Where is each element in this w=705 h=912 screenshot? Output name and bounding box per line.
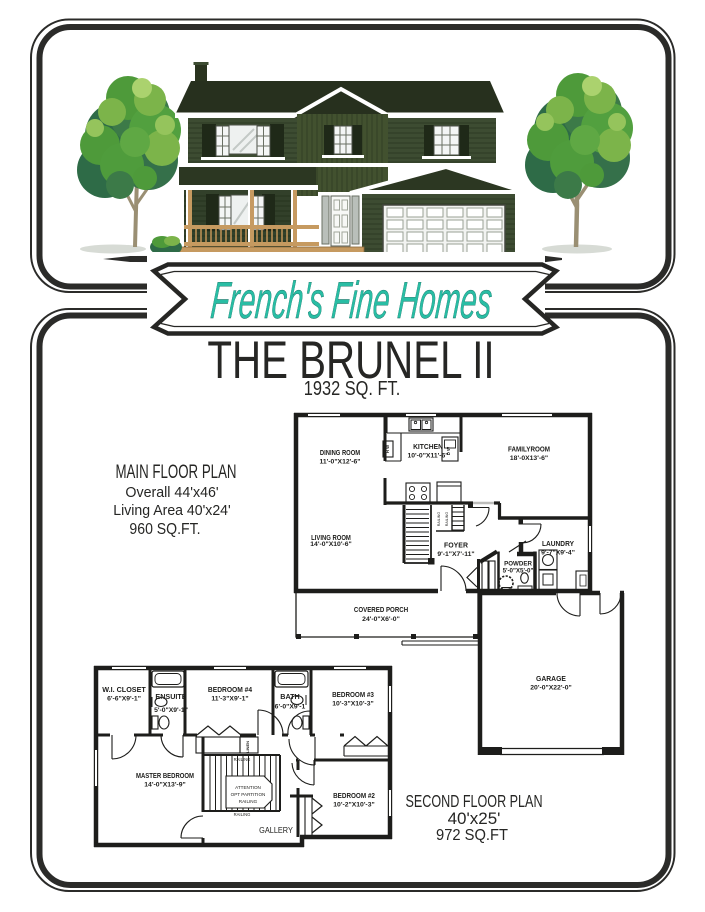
svg-text:BEDROOM #3: BEDROOM #3: [332, 692, 374, 699]
svg-text:French's Fine Homes: French's Fine Homes: [209, 271, 495, 329]
svg-text:DINING ROOM: DINING ROOM: [320, 449, 361, 457]
svg-text:20'-0"X22'-0": 20'-0"X22'-0": [530, 685, 571, 692]
svg-text:LAUNDRY: LAUNDRY: [542, 541, 574, 548]
svg-text:Overall 44'x46': Overall 44'x46': [125, 485, 218, 501]
svg-text:POWDER: POWDER: [504, 560, 532, 567]
svg-text:LINEN: LINEN: [245, 741, 250, 753]
svg-text:10'-2"X10'-3": 10'-2"X10'-3": [333, 802, 374, 809]
svg-text:RAILING: RAILING: [437, 512, 441, 527]
svg-text:RAILING: RAILING: [445, 512, 449, 527]
svg-text:5'-0"X5'-0": 5'-0"X5'-0": [503, 568, 534, 575]
svg-text:11'-0"X12'-6": 11'-0"X12'-6": [319, 459, 360, 466]
svg-text:18'-0X13'-6": 18'-0X13'-6": [510, 455, 548, 462]
svg-text:OPT PARTITION: OPT PARTITION: [231, 792, 266, 797]
svg-text:ENSUITE: ENSUITE: [155, 692, 186, 701]
svg-text:10'-3"X10'-3": 10'-3"X10'-3": [332, 701, 373, 708]
svg-text:14'-0"X10'-6": 14'-0"X10'-6": [310, 541, 351, 548]
svg-text:RAILING: RAILING: [234, 757, 251, 762]
svg-text:40'x25': 40'x25': [448, 809, 501, 828]
svg-text:GALLERY: GALLERY: [259, 826, 293, 835]
svg-text:BEDROOM #2: BEDROOM #2: [333, 793, 375, 800]
svg-text:FAMILYROOM: FAMILYROOM: [508, 446, 550, 454]
svg-text:BEDROOM #4: BEDROOM #4: [208, 687, 252, 694]
svg-text:RAILING: RAILING: [234, 812, 251, 817]
svg-text:RAILING: RAILING: [239, 799, 258, 804]
svg-text:14'-0"X13'-9": 14'-0"X13'-9": [144, 782, 185, 789]
svg-text:FOYER: FOYER: [444, 541, 469, 549]
svg-text:10'-0"X11'-6": 10'-0"X11'-6": [407, 453, 448, 460]
svg-text:ATTENTION: ATTENTION: [235, 785, 261, 790]
svg-text:24'-0"X6'-0": 24'-0"X6'-0": [362, 616, 400, 623]
svg-text:COVERED PORCH: COVERED PORCH: [354, 607, 408, 615]
svg-text:W.I. CLOSET: W.I. CLOSET: [102, 685, 146, 694]
svg-text:960 SQ.FT.: 960 SQ.FT.: [129, 520, 200, 538]
svg-text:9'-7"X9'-4": 9'-7"X9'-4": [541, 550, 575, 557]
svg-text:MAIN FLOOR PLAN: MAIN FLOOR PLAN: [115, 462, 236, 483]
svg-text:BATH: BATH: [280, 692, 299, 701]
svg-text:MASTER BEDROOM: MASTER BEDROOM: [136, 773, 194, 781]
svg-text:KITCHEN: KITCHEN: [413, 444, 443, 451]
svg-text:D W: D W: [446, 447, 451, 455]
svg-text:Living Area 40'x24': Living Area 40'x24': [113, 503, 231, 519]
svg-text:1932 SQ. FT.: 1932 SQ. FT.: [304, 376, 401, 399]
svg-text:972 SQ.FT: 972 SQ.FT: [436, 826, 509, 844]
svg-text:6'-6"X9'-1": 6'-6"X9'-1": [107, 696, 141, 703]
svg-text:GARAGE: GARAGE: [536, 675, 566, 683]
svg-text:9'-1"X7'-11": 9'-1"X7'-11": [437, 551, 474, 558]
svg-text:6'-0"X9'-1: 6'-0"X9'-1: [275, 704, 306, 711]
svg-text:H W: H W: [385, 445, 390, 453]
svg-text:11'-3"X9'-1": 11'-3"X9'-1": [211, 696, 248, 703]
svg-text:5'-0"X9'-1": 5'-0"X9'-1": [154, 707, 188, 714]
